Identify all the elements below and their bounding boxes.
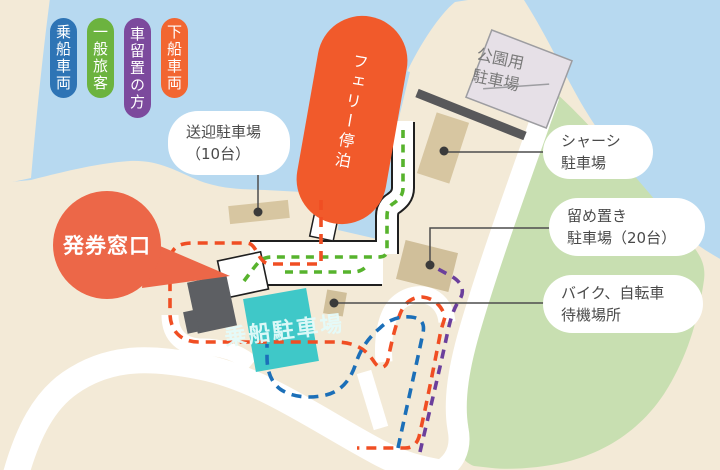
legend-pill-general-passengers: 一般旅客 xyxy=(87,18,114,98)
callout-storage-line2: 駐車場（20台） xyxy=(567,227,695,250)
leader-dot-pickup xyxy=(254,208,263,217)
callout-storage-line1: 留め置き xyxy=(567,205,695,228)
callout-chassis-line2: 駐車場 xyxy=(561,152,643,175)
ticket-window-bubble: 発券窓口 xyxy=(53,191,161,299)
callout-pickup-line2: （10台） xyxy=(186,143,280,166)
legend-pill-boarding-vehicles: 乗船車両 xyxy=(50,18,77,98)
callout-chassis-parking: シャーシ 駐車場 xyxy=(543,125,653,179)
ferry-terminal-map: 乗船車両 一般旅客 車留置の方 下船車両 送迎駐車場 （10台） シャーシ 駐車… xyxy=(0,0,720,470)
legend-pill-car-storage: 車留置の方 xyxy=(124,18,151,118)
leader-dot-storage xyxy=(426,261,435,270)
callout-storage-parking: 留め置き 駐車場（20台） xyxy=(549,198,705,256)
callout-bike-line2: 待機場所 xyxy=(561,304,693,327)
callout-chassis-line1: シャーシ xyxy=(561,130,643,153)
callout-pickup-line1: 送迎駐車場 xyxy=(186,121,280,144)
callout-pickup-parking: 送迎駐車場 （10台） xyxy=(168,111,290,175)
legend-pill-disembarking: 下船車両 xyxy=(161,18,188,98)
callout-bike-waiting: バイク、自転車 待機場所 xyxy=(543,275,703,333)
leader-dot-chassis xyxy=(440,147,449,156)
callout-bike-line1: バイク、自転車 xyxy=(561,282,693,305)
